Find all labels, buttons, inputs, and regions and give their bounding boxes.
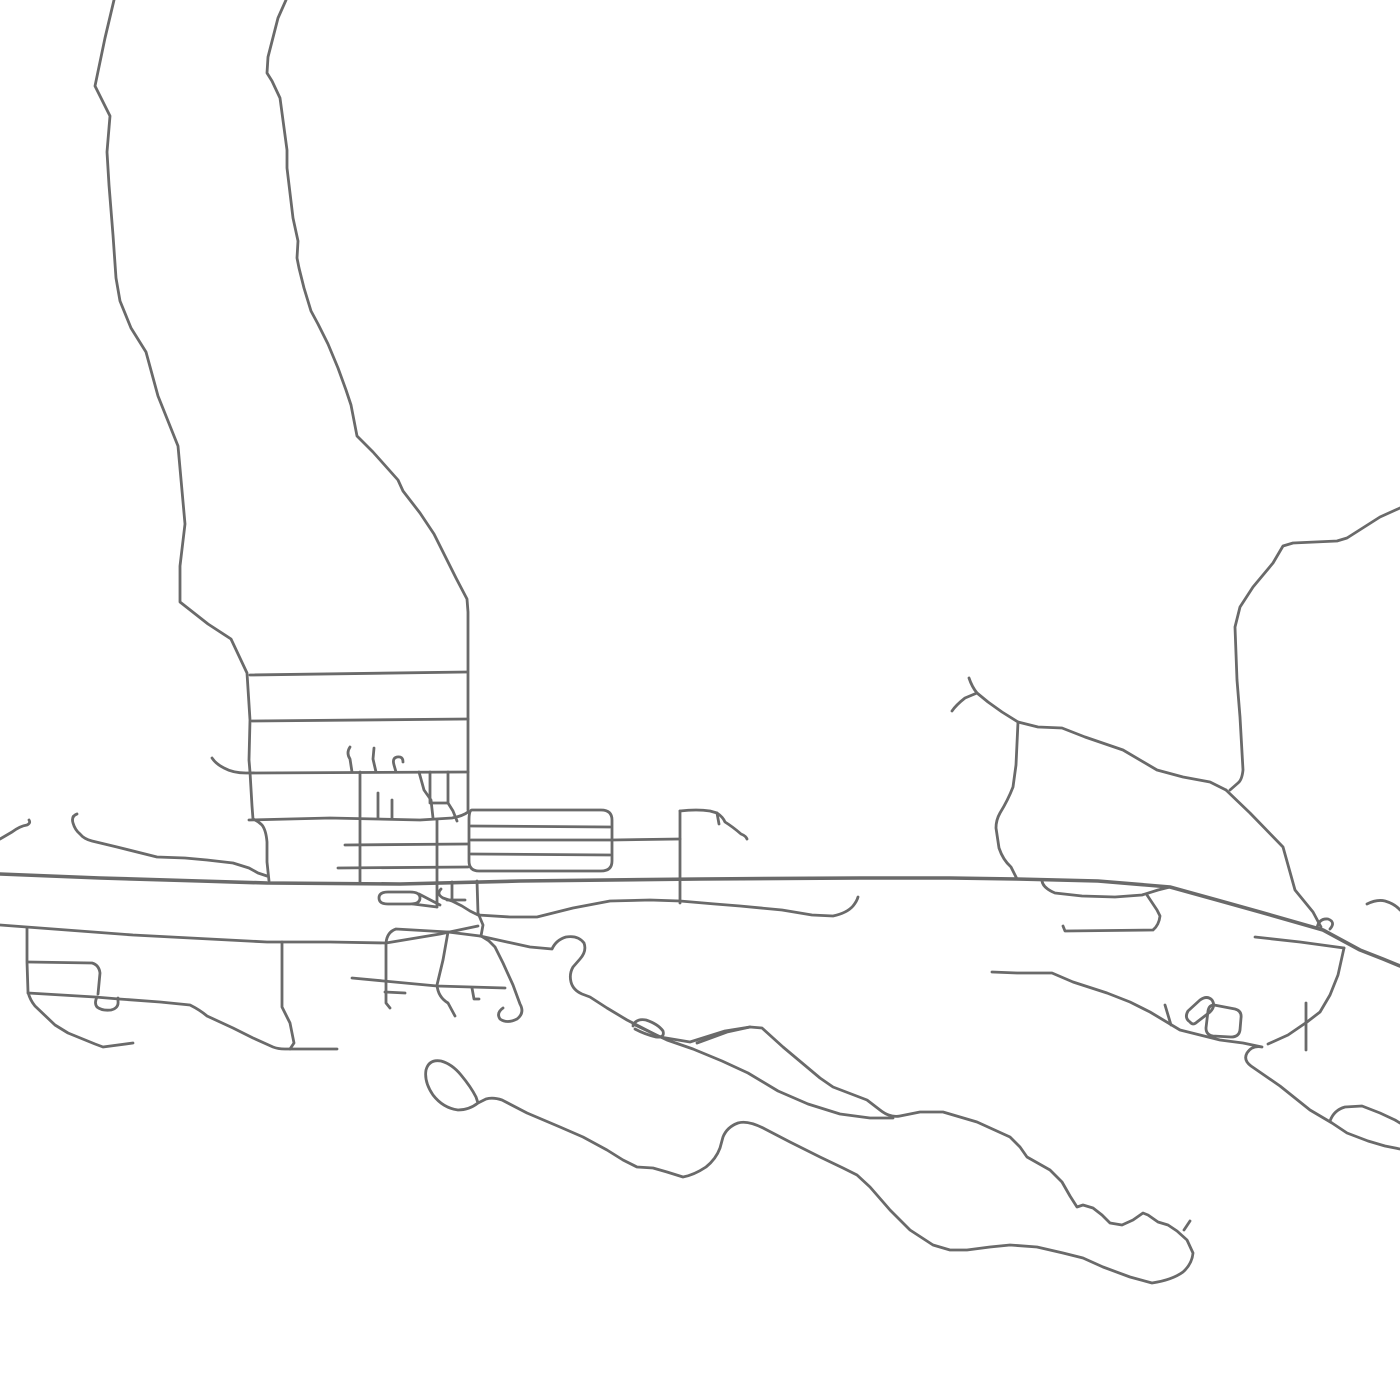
road-street-h6: [338, 867, 468, 868]
map-viewport: [0, 0, 1400, 1400]
map-background: [0, 0, 1400, 1400]
road-map-canvas: [0, 0, 1400, 1400]
road-tick-680: [717, 813, 719, 824]
road-street-h5: [345, 844, 468, 845]
road-road-east-stadium: [612, 839, 680, 840]
road-street-h2: [252, 719, 468, 721]
road-stadium-inner-3: [471, 854, 610, 855]
road-stadium-inner-1: [471, 826, 610, 827]
road-block-left-stub: [385, 992, 405, 993]
